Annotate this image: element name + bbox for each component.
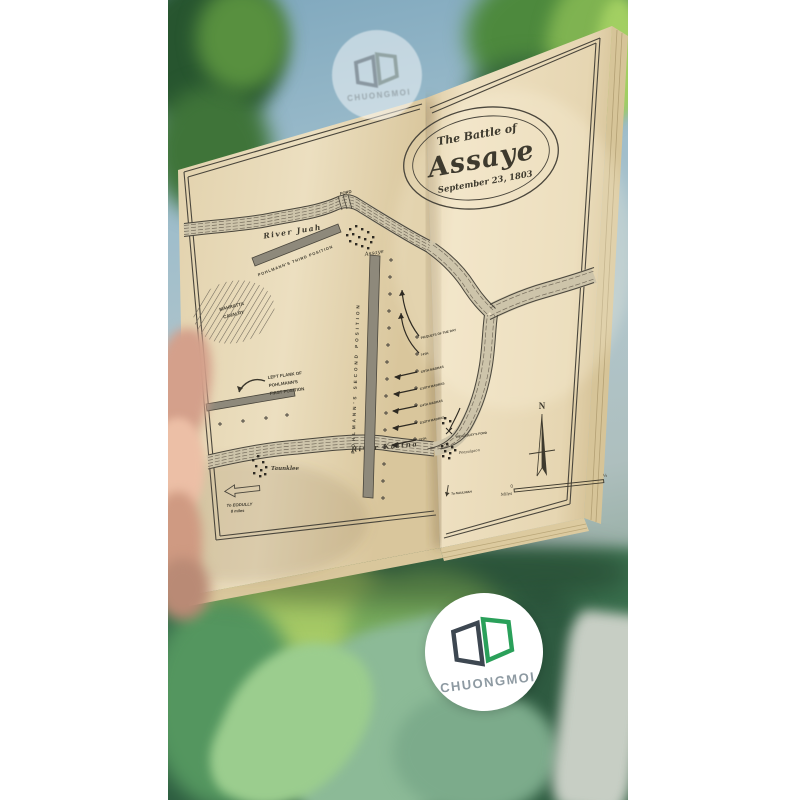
book-photo: River Juah River Kaitna FORD Assaye POHL… xyxy=(168,0,628,800)
book-map-svg: River Juah River Kaitna FORD Assaye POHL… xyxy=(168,0,628,800)
svg-text:8 miles: 8 miles xyxy=(231,508,246,514)
taunklee-label: Taunklee xyxy=(271,466,300,472)
open-book-icon xyxy=(443,610,523,675)
svg-text:½: ½ xyxy=(603,472,608,478)
svg-text:N: N xyxy=(539,401,546,411)
screenshot-canvas: River Juah River Kaitna FORD Assaye POHL… xyxy=(0,0,800,800)
open-book-icon xyxy=(349,48,405,93)
